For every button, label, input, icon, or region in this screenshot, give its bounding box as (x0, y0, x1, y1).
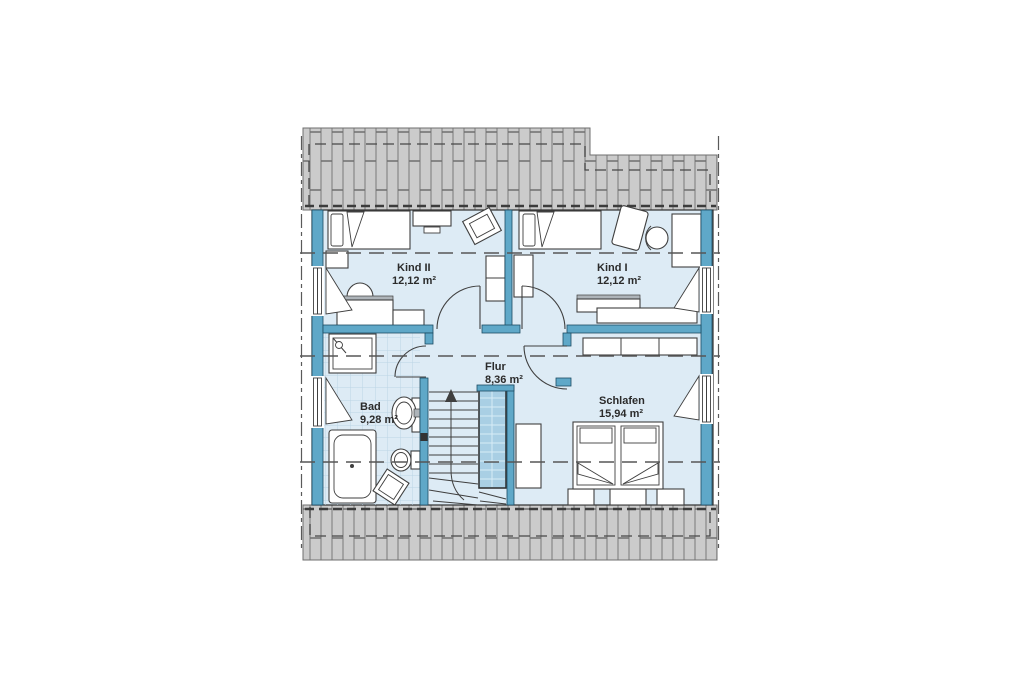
bench (568, 489, 594, 505)
bench (657, 489, 684, 505)
room-label-flur: Flur 8,36 m² (485, 361, 523, 387)
room-name: Schlafen (599, 395, 645, 408)
bench (610, 489, 646, 505)
room-label-bad: Bad 9,28 m² (360, 401, 398, 427)
bathtub (329, 430, 376, 503)
shower (329, 334, 376, 373)
floor-plan-drawing (0, 0, 1024, 689)
room-label-schlafen: Schlafen 15,94 m² (599, 395, 645, 421)
wardrobe (583, 338, 697, 355)
stair-bedroom-wall (507, 385, 514, 505)
room-name: Kind I (597, 262, 641, 275)
bath-stair-wall (420, 378, 428, 505)
room-name: Flur (485, 361, 523, 374)
wardrobe (486, 256, 505, 301)
room-area: 8,36 m² (485, 374, 523, 387)
exterior-wall-left (312, 210, 323, 505)
room-area: 12,12 m² (597, 275, 641, 288)
room-label-kind2: Kind II 12,12 m² (392, 262, 436, 288)
room-name: Bad (360, 401, 398, 414)
exterior-wall-right (701, 210, 712, 505)
double-bed (573, 422, 663, 489)
side-table (413, 211, 451, 226)
roof-hatch-bottom (303, 505, 717, 560)
room-area: 12,12 m² (392, 275, 436, 288)
stool (424, 227, 440, 233)
closet (516, 424, 541, 488)
desk (672, 214, 701, 267)
toilet (391, 449, 420, 471)
section-marker (421, 433, 428, 441)
roof-hatch-top (303, 128, 717, 210)
floorplan-page: Kind II 12,12 m² Kind I 12,12 m² Flur 8,… (0, 0, 1024, 689)
partition-kids-rooms (505, 210, 512, 328)
bed (328, 211, 410, 249)
room-name: Kind II (397, 262, 436, 275)
room-label-kind1: Kind I 12,12 m² (597, 262, 641, 288)
wardrobe (514, 255, 533, 297)
stairwell-opening (479, 389, 506, 488)
room-area: 15,94 m² (599, 408, 645, 421)
bed (519, 211, 601, 249)
room-area: 9,28 m² (360, 414, 398, 427)
